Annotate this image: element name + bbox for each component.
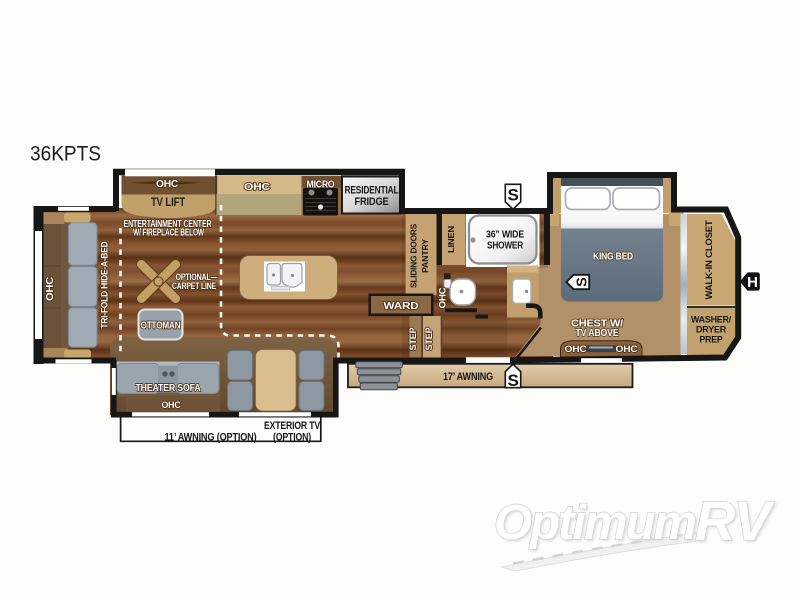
svg-text:11’ AWNING (OPTION): 11’ AWNING (OPTION) (165, 431, 257, 443)
svg-text:OHC: OHC (45, 277, 56, 301)
svg-text:KING BED: KING BED (593, 251, 634, 262)
svg-text:SHOWER: SHOWER (487, 240, 524, 251)
svg-text:STEP: STEP (424, 327, 434, 350)
svg-text:OHC: OHC (156, 178, 179, 190)
svg-text:(OPTION): (OPTION) (273, 431, 311, 443)
svg-text:TV LIFT: TV LIFT (151, 197, 185, 209)
svg-text:SLIDING DOORS: SLIDING DOORS (409, 224, 419, 288)
svg-text:OHC: OHC (438, 287, 448, 309)
svg-text:OTTOMAN: OTTOMAN (141, 321, 181, 332)
svg-text:STEP: STEP (408, 327, 418, 350)
svg-text:WARD: WARD (384, 301, 419, 312)
svg-text:S: S (575, 277, 591, 287)
svg-text:S: S (508, 186, 519, 205)
svg-text:OHC: OHC (244, 181, 271, 193)
svg-text:THEATER SOFA: THEATER SOFA (136, 383, 202, 394)
svg-text:FRIDGE: FRIDGE (355, 196, 390, 208)
svg-text:DRYER: DRYER (696, 325, 727, 335)
svg-text:WASHER/: WASHER/ (691, 315, 732, 325)
svg-text:CARPET LINE: CARPET LINE (172, 281, 217, 292)
svg-text:S: S (508, 371, 519, 390)
svg-text:OHC: OHC (565, 344, 588, 354)
svg-text:36KPTS: 36KPTS (30, 143, 101, 166)
svg-text:WALK-IN CLOSET: WALK-IN CLOSET (704, 220, 714, 300)
svg-text:17’ AWNING: 17’ AWNING (443, 371, 493, 383)
svg-text:EXTERIOR TV: EXTERIOR TV (264, 420, 321, 432)
svg-text:OptimumRV: OptimumRV (494, 489, 775, 552)
svg-text:H: H (747, 274, 758, 291)
svg-text:W/ FIREPLACE BELOW: W/ FIREPLACE BELOW (133, 228, 204, 239)
svg-text:36” WIDE: 36” WIDE (486, 229, 524, 240)
svg-text:OHC: OHC (162, 400, 181, 411)
svg-text:TV ABOVE: TV ABOVE (576, 328, 619, 339)
svg-text:PREP: PREP (700, 335, 723, 345)
svg-text:OHC: OHC (616, 344, 639, 354)
svg-text:LINEN: LINEN (446, 226, 456, 253)
svg-text:PANTRY: PANTRY (420, 239, 430, 273)
svg-text:TRI-FOLD HIDE-A-BED: TRI-FOLD HIDE-A-BED (100, 241, 111, 328)
svg-text:RESIDENTIAL: RESIDENTIAL (345, 185, 399, 197)
